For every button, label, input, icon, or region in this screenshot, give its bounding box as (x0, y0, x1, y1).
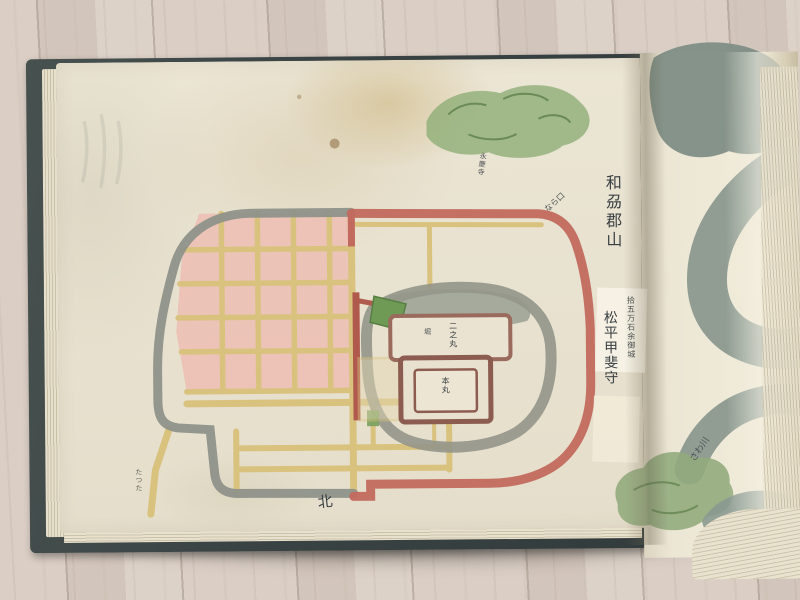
compass-north-label: 北 (317, 494, 334, 511)
book-gutter (622, 53, 668, 545)
honmaru-label: 本丸 (441, 377, 450, 395)
open-book: 和刕郡山 拾五万石余御城 松平甲斐守 北 二之丸 本丸 堀 永慶寺 なら口 さわ… (0, 0, 800, 600)
bleedthrough-marks (82, 115, 121, 186)
foliage-hills (426, 85, 590, 159)
moat-label: 堀 (423, 328, 430, 336)
cartouche-daimyo-name: 松平甲斐守 (602, 310, 617, 385)
town-blocks (175, 212, 351, 392)
ninomaru-label: 二之丸 (448, 322, 457, 349)
map-title: 和刕郡山 (603, 174, 620, 250)
road-southwest-label: たつた (134, 468, 142, 492)
photo-of-open-atlas-book: 和刕郡山 拾五万石余御城 松平甲斐守 北 二之丸 本丸 堀 永慶寺 なら口 さわ… (0, 0, 800, 600)
west-yard (359, 358, 402, 420)
map-artwork (0, 0, 800, 600)
fore-edge-pages (760, 67, 800, 557)
inner-moat-red-west (356, 292, 357, 420)
ink-spot (297, 95, 301, 99)
ink-spot (330, 139, 340, 149)
